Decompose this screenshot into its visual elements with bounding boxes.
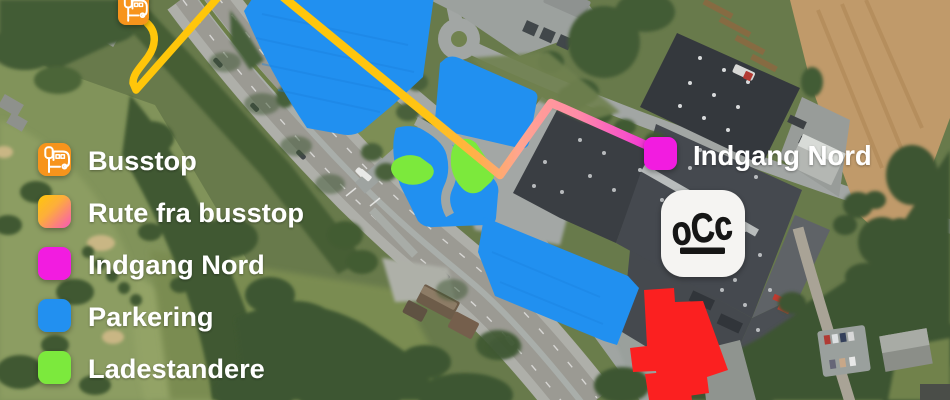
svg-text:oCc: oCc: [669, 201, 735, 254]
svg-text:Ladestandere: Ladestandere: [88, 353, 265, 384]
svg-text:Indgang Nord: Indgang Nord: [88, 249, 265, 280]
svg-text:Busstop: Busstop: [88, 145, 197, 176]
svg-text:Indgang Nord: Indgang Nord: [693, 140, 872, 171]
svg-text:Rute fra busstop: Rute fra busstop: [88, 197, 304, 228]
svg-text:Parkering: Parkering: [88, 301, 213, 332]
